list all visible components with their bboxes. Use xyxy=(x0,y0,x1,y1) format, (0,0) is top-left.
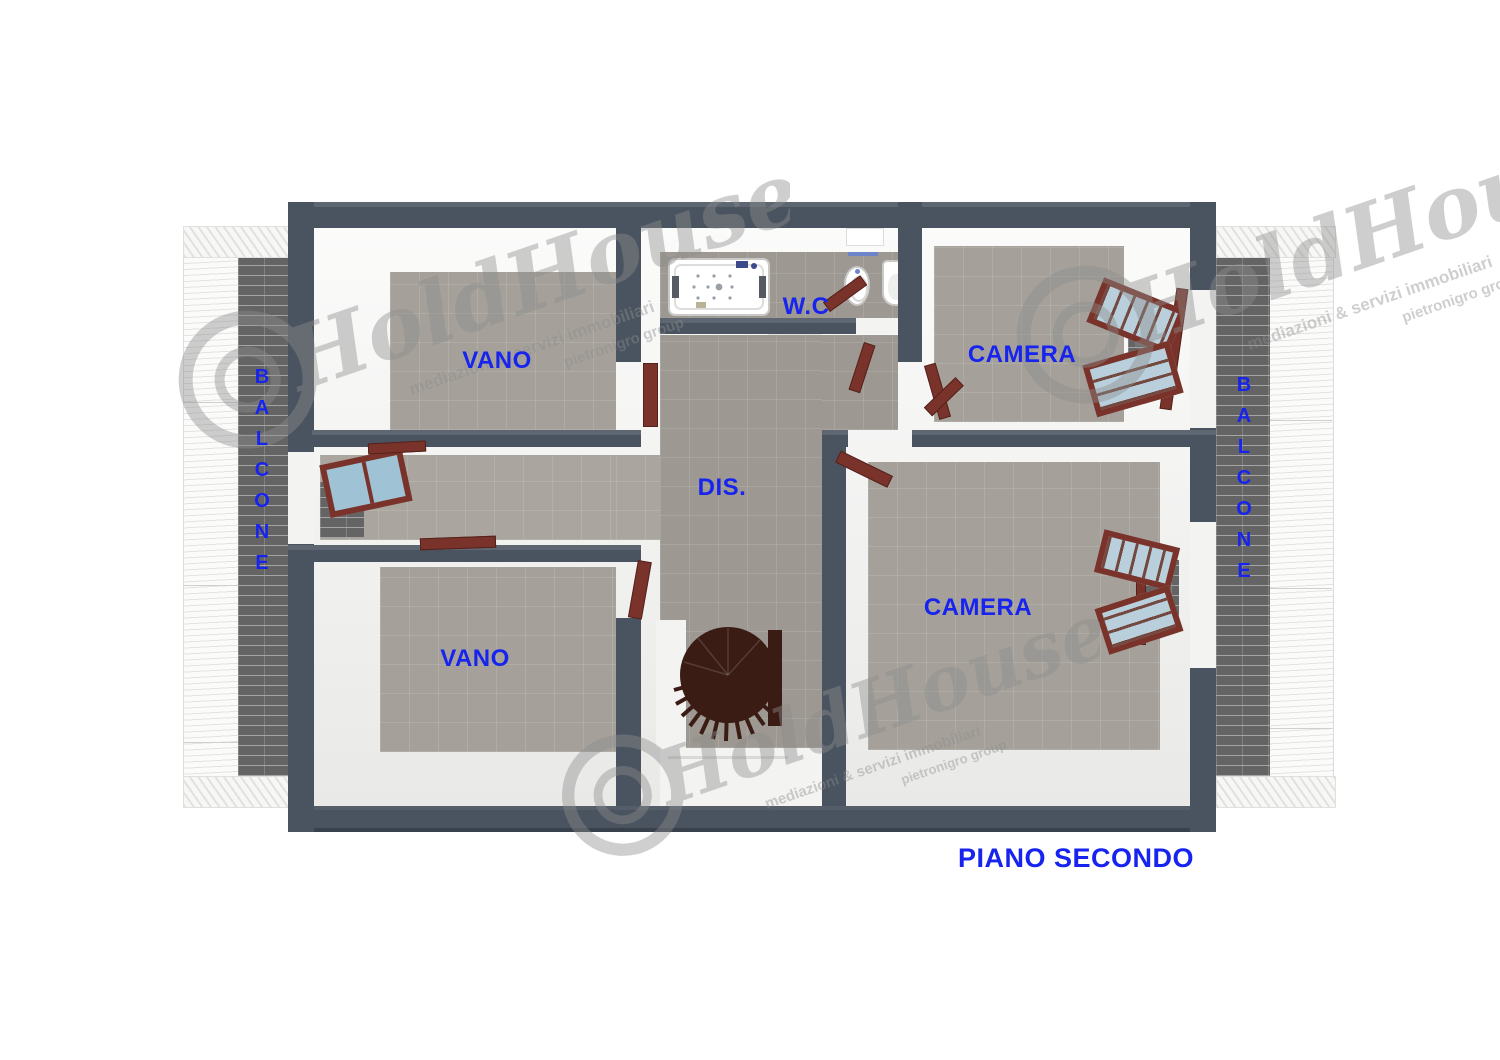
wall-mid-right-a xyxy=(822,430,848,447)
balcone-letter: E xyxy=(255,552,268,575)
wall-outer-right-lower xyxy=(1190,668,1216,832)
wall-dis-camera-bottom xyxy=(822,447,846,806)
balcone-letter: E xyxy=(1237,560,1250,583)
roof-seam xyxy=(1262,420,1332,421)
roof-seam xyxy=(1262,588,1332,589)
spiral-staircase xyxy=(664,612,794,752)
window-mullion xyxy=(362,462,375,504)
wall-outer-bottom xyxy=(288,806,1216,832)
balcony-right-roof xyxy=(1262,226,1334,808)
roof-seam xyxy=(1262,728,1332,729)
balcony-right-roof-corner-bottom xyxy=(1216,776,1336,808)
balcone-letter: B xyxy=(255,366,269,389)
bathtub-detail xyxy=(670,260,768,314)
roof-seam xyxy=(183,742,245,743)
balcony-right-roof-corner-top xyxy=(1216,226,1336,258)
balcone-letter: B xyxy=(1237,374,1251,397)
wall-vano-wc xyxy=(616,226,641,362)
dis-door-sill xyxy=(668,756,788,759)
floor-plan-canvas: HoldHouse mediazioni & servizi immobilia… xyxy=(0,0,1500,1060)
wc-towel-rail xyxy=(848,252,878,256)
opening-corridor-window xyxy=(288,452,314,544)
balcone-letter: O xyxy=(1236,498,1252,521)
room-label-vano-bottom: VANO xyxy=(440,645,510,673)
room-label-vano-top: VANO xyxy=(462,347,532,375)
balcony-left-roof-corner-bottom xyxy=(183,776,293,808)
room-label-camera-bottom: CAMERA xyxy=(924,594,1032,622)
balcony-left-label: B A L C O N E xyxy=(244,366,280,575)
room-label-camera-top: CAMERA xyxy=(968,341,1076,369)
balcone-letter: N xyxy=(1237,529,1251,552)
floor-corridor-link xyxy=(616,455,660,540)
balcone-letter: A xyxy=(255,397,269,420)
bathtub xyxy=(668,258,770,316)
wc-door-threshold xyxy=(856,318,898,334)
wc-ceiling-vent xyxy=(846,228,884,246)
balcony-right-label: B A L C O N E xyxy=(1226,374,1262,583)
balcone-letter: C xyxy=(1237,467,1251,490)
room-label-wc: W.C xyxy=(783,293,830,321)
balcone-letter: O xyxy=(254,490,270,513)
balcone-letter: N xyxy=(255,521,269,544)
watermark-subline: pietronigro group xyxy=(1400,269,1500,326)
balcony-left-roof-corner-top xyxy=(183,226,293,258)
balcone-letter: C xyxy=(255,459,269,482)
bidet-tap xyxy=(855,269,860,274)
room-label-dis: DIS. xyxy=(698,474,747,502)
wall-vano-bottom-right xyxy=(616,618,641,806)
roof-seam xyxy=(183,585,245,586)
opening-camera-top-window xyxy=(1190,290,1216,428)
wall-outer-right-upper xyxy=(1190,202,1216,290)
balcone-letter: L xyxy=(256,428,268,451)
door-vano-top xyxy=(643,363,658,427)
balcone-letter: L xyxy=(1238,436,1250,459)
roof-seam xyxy=(183,402,245,403)
wall-corridor-top xyxy=(312,430,641,447)
wall-mid-right-b xyxy=(912,430,1216,447)
wall-wc-camera xyxy=(898,202,922,362)
balcone-letter: A xyxy=(1237,405,1251,428)
floor-title: PIANO SECONDO xyxy=(958,843,1194,874)
wall-outer-left-lower xyxy=(288,544,314,832)
wall-outer-top xyxy=(288,202,1216,228)
opening-camera-bottom-window xyxy=(1190,522,1216,668)
wall-outer-left-upper xyxy=(288,202,314,454)
